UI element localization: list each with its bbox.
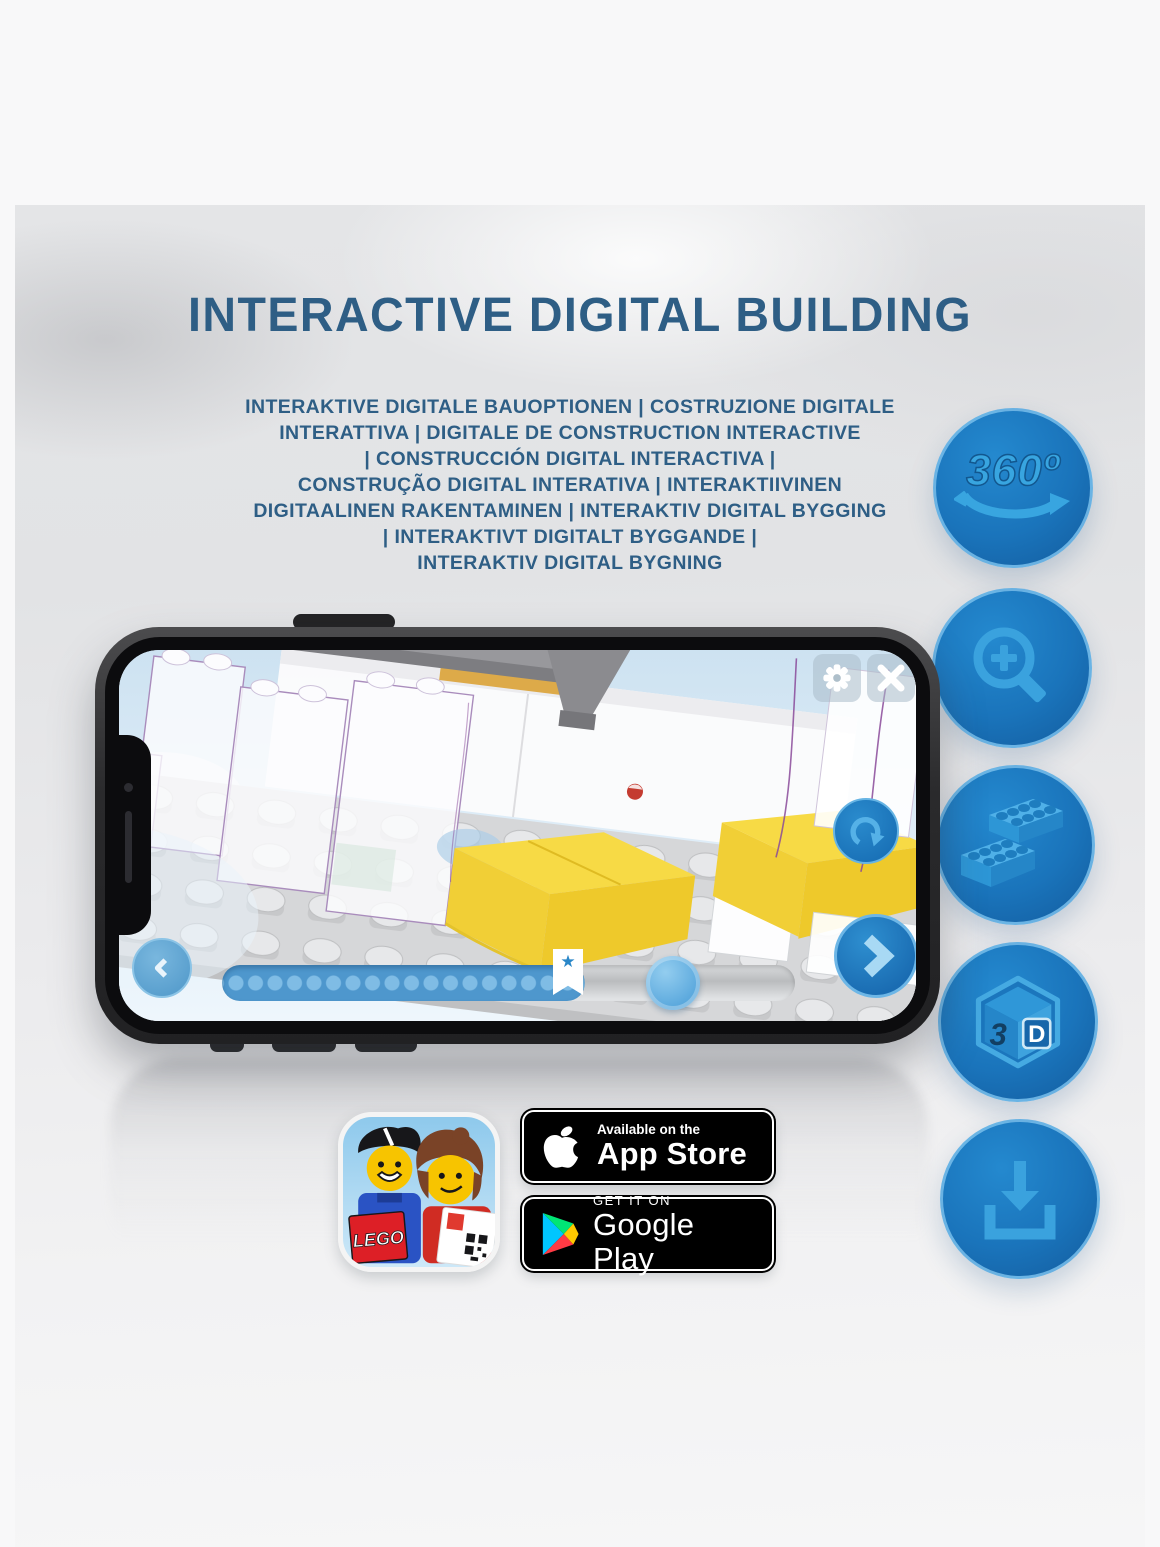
close-button[interactable] <box>867 654 915 702</box>
phone-mockup: ★ <box>95 627 940 1044</box>
close-icon <box>876 663 906 693</box>
phone-reflection <box>110 1058 928 1273</box>
lego-app-artwork: LEGO <box>343 1117 495 1267</box>
google-play-logo-icon <box>540 1211 580 1257</box>
download-arrow-icon <box>970 1149 1070 1249</box>
rotation-360-icon: 360º <box>933 408 1093 568</box>
chevron-left-icon <box>149 955 175 981</box>
progress-handle[interactable] <box>646 956 700 1010</box>
app-screen: ★ <box>119 650 916 1021</box>
phone-notch <box>113 735 151 935</box>
cube-face-d: D <box>1028 1021 1045 1048</box>
brick-building-icon <box>935 765 1095 925</box>
subtitle-line: | CONSTRUCCIÓN DIGITAL INTERACTIVA | <box>170 446 970 472</box>
zoom-in-icon <box>932 588 1092 748</box>
subtitle-line: INTERAKTIV DIGITAL BYGNING <box>170 550 970 576</box>
3d-cube-icon: 3 D <box>966 970 1070 1074</box>
gear-icon <box>820 661 854 695</box>
subtitle-line: | INTERAKTIVT DIGITALT BYGGANDE | <box>170 524 970 550</box>
download-icon <box>940 1119 1100 1279</box>
magnifier-plus-icon <box>962 618 1062 718</box>
app-store-badge[interactable]: Available on the App Store <box>522 1110 774 1183</box>
subtitle-line: CONSTRUÇÃO DIGITAL INTERATIVA | INTERAKT… <box>170 472 970 498</box>
subtitle-line: INTERAKTIVE DIGITALE BAUOPTIONEN | COSTR… <box>170 394 970 420</box>
settings-button[interactable] <box>813 654 861 702</box>
page-title: INTERACTIVE DIGITAL BUILDING <box>17 288 1142 343</box>
build-progress-bar[interactable]: ★ <box>222 965 795 1001</box>
chevron-right-icon <box>856 933 896 979</box>
speaker-slot <box>125 811 132 883</box>
app-store-badge-text: Available on the App Store <box>597 1122 747 1171</box>
google-play-name: Google Play <box>593 1208 756 1276</box>
previous-step-button[interactable] <box>132 938 192 998</box>
rotation-arrow-icon <box>954 491 1072 525</box>
lego-bricks-icon <box>959 793 1071 897</box>
google-play-badge-text: GET IT ON Google Play <box>593 1193 756 1276</box>
app-store-tagline: Available on the <box>597 1122 747 1137</box>
apple-logo-icon <box>540 1121 584 1173</box>
lego-app-icon: LEGO <box>338 1112 500 1272</box>
rotation-360-label: 360º <box>966 451 1059 491</box>
front-camera <box>124 783 133 792</box>
next-step-button[interactable] <box>834 914 916 998</box>
subtitle-line: DIGITAALINEN RAKENTAMINEN | INTERAKTIV D… <box>170 498 970 524</box>
promo-banner: INTERACTIVE DIGITAL BUILDING INTERAKTIVE… <box>0 0 1160 1547</box>
build-progress-fill <box>222 965 585 1001</box>
rotate-model-button[interactable] <box>833 798 899 864</box>
rotate-icon <box>846 811 886 851</box>
subtitle-translations: INTERAKTIVE DIGITALE BAUOPTIONEN | COSTR… <box>170 394 970 576</box>
google-play-badge[interactable]: GET IT ON Google Play <box>522 1197 774 1271</box>
cube-face-3: 3 <box>990 1017 1007 1052</box>
subtitle-line: INTERATTIVA | DIGITALE DE CONSTRUCTION I… <box>170 420 970 446</box>
3d-view-icon: 3 D <box>938 942 1098 1102</box>
app-store-name: App Store <box>597 1137 747 1171</box>
google-play-tagline: GET IT ON <box>593 1193 756 1208</box>
